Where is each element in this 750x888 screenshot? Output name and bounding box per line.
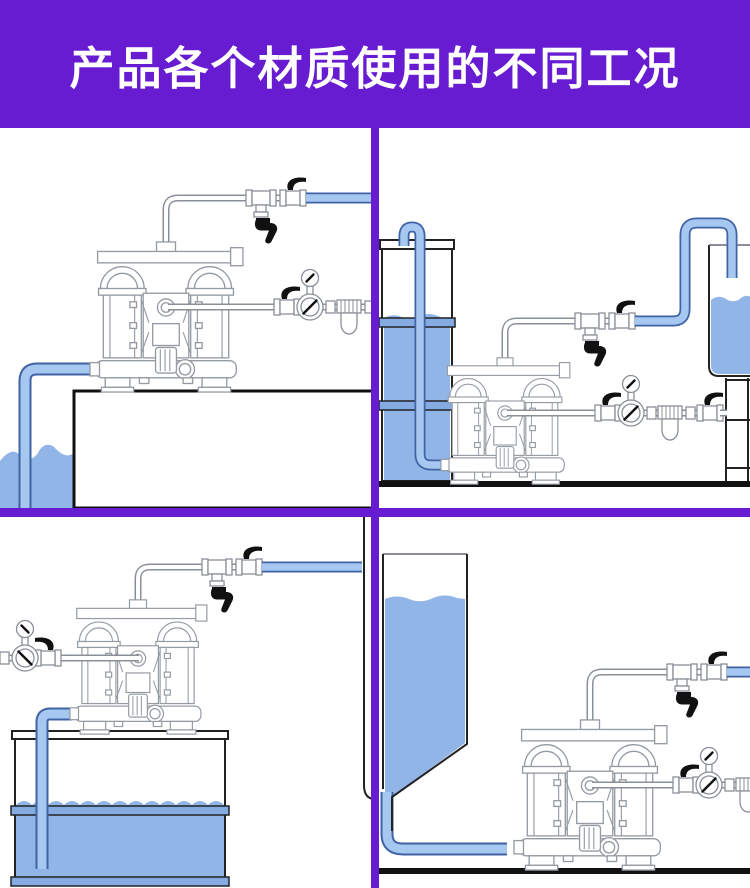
- pump-illustration: [70, 600, 207, 734]
- discharge-valve-gun: [575, 301, 635, 367]
- scenario-panel-top-right: [379, 128, 750, 508]
- air-supply-set: [664, 748, 750, 813]
- hopper-outlet-hose: [387, 792, 507, 849]
- scenario-illustration-4: [379, 517, 750, 888]
- air-supply-set: [0, 621, 70, 686]
- horizontal-panel-divider: [0, 508, 750, 517]
- standpipe-wall: [364, 517, 371, 799]
- discharge-valve-gun: [667, 652, 727, 718]
- pump-illustration: [441, 358, 570, 484]
- discharge-valve-gun: [246, 178, 306, 244]
- water-pit: [0, 445, 74, 508]
- platform: [74, 391, 371, 508]
- discharge-pipe: [166, 198, 246, 248]
- scenario-illustration-2: [379, 128, 750, 508]
- page-title: 产品各个材质使用的不同工况: [69, 32, 680, 97]
- scenario-illustration-3: [0, 517, 371, 888]
- page: { "header": { "title": "产品各个材质使用的不同工况" }…: [0, 0, 750, 888]
- discharge-pipe: [505, 321, 575, 364]
- elevated-tank: [709, 245, 750, 481]
- scenario-panel-bottom-right: [379, 517, 750, 888]
- tank-stand: [726, 378, 750, 481]
- floor: [379, 481, 750, 487]
- scenario-panel-top-left: [0, 128, 371, 508]
- air-supply-set: [265, 270, 371, 335]
- discharge-valve-gun: [202, 547, 262, 613]
- hopper: [385, 596, 465, 797]
- air-supply-set: [586, 376, 723, 441]
- pump-illustration: [90, 242, 243, 392]
- pump-illustration: [514, 720, 667, 870]
- floor: [379, 868, 750, 874]
- scenario-panel-bottom-left: [0, 517, 371, 888]
- discharge-pipe: [590, 672, 667, 727]
- scenario-illustration-1: [0, 128, 371, 508]
- header-banner: 产品各个材质使用的不同工况: [0, 0, 750, 128]
- discharge-pipe: [138, 567, 202, 607]
